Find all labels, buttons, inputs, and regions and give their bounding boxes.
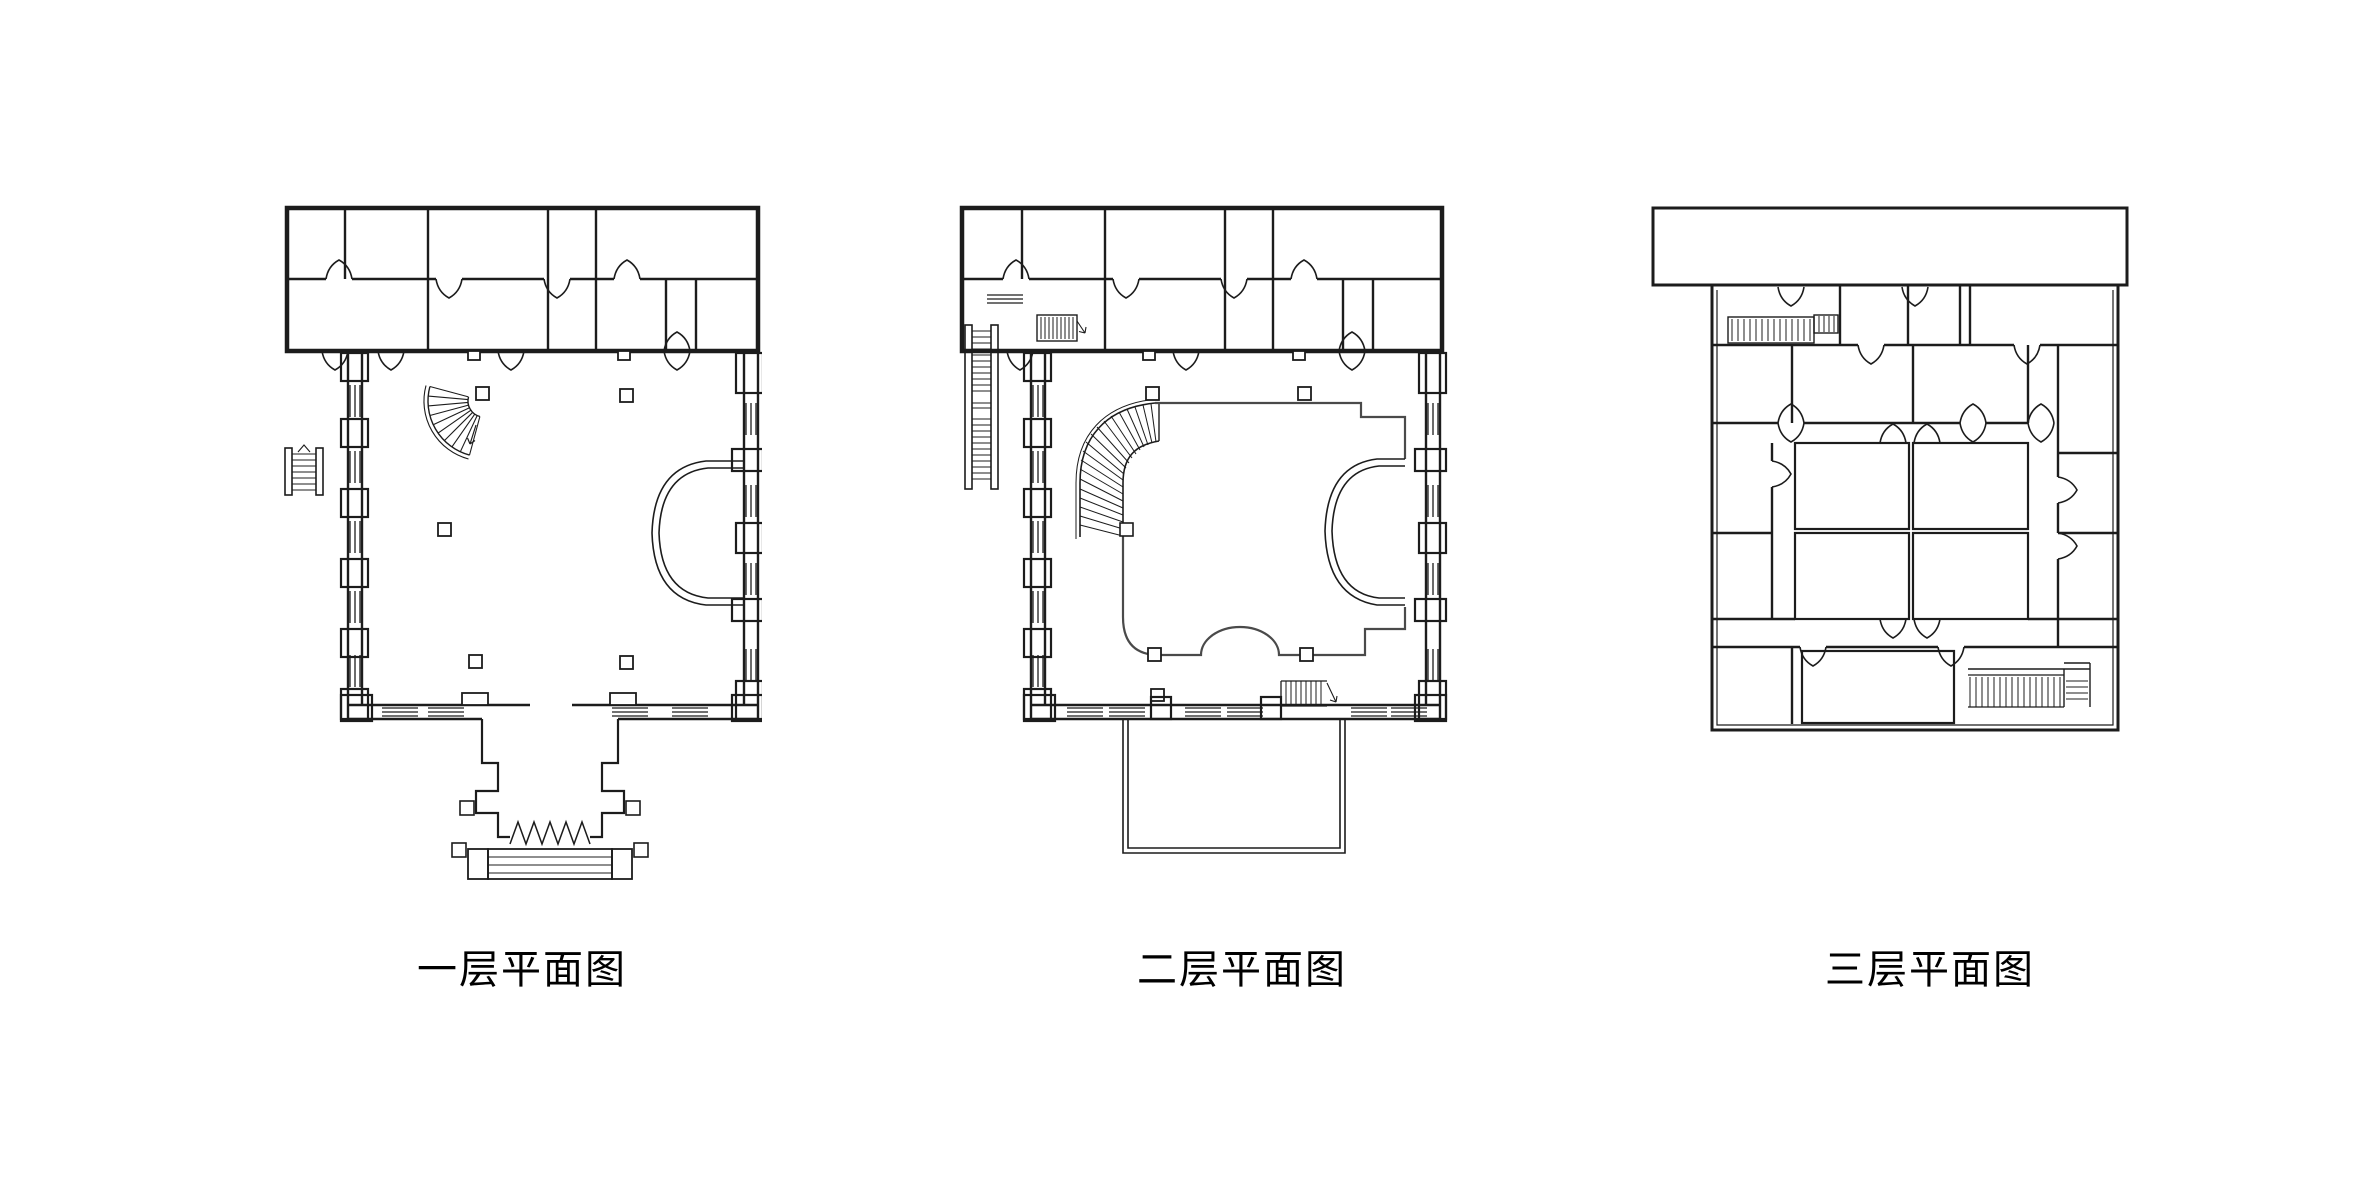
grand-curved-staircase-icon bbox=[1076, 399, 1159, 539]
wall-piers bbox=[341, 353, 762, 721]
floor-plan-2-caption: 二层平面图 bbox=[1002, 938, 1482, 1002]
wing-window-icon bbox=[987, 295, 1023, 303]
column-icons bbox=[1146, 387, 1313, 661]
drawing-sheet: 一层平面图 二层平面图 三层平面图 bbox=[0, 0, 2362, 1181]
exterior-stair-icon bbox=[285, 445, 323, 495]
wall-piers bbox=[1024, 353, 1446, 721]
roof-band bbox=[1653, 208, 2127, 285]
lower-stair-icon bbox=[1968, 663, 2090, 707]
floor-plan-1-drawing bbox=[282, 203, 762, 883]
gallery-balcony-line bbox=[1123, 403, 1405, 655]
entrance-steps-icon bbox=[468, 849, 632, 879]
floor-plan-3-drawing bbox=[1650, 203, 2130, 743]
floor-plan-2-drawing bbox=[955, 203, 1465, 863]
awning-zigzag bbox=[510, 822, 590, 844]
stage-apse bbox=[652, 461, 744, 605]
hall-walls bbox=[1031, 351, 1440, 719]
interior-walls bbox=[1712, 285, 2118, 724]
stage-apse bbox=[1325, 459, 1405, 605]
floor-plan-3-caption: 三层平面图 bbox=[1690, 938, 2170, 1002]
wing-walls bbox=[287, 208, 758, 360]
entrance-portico bbox=[452, 719, 648, 879]
door-swing-icons bbox=[322, 260, 690, 370]
wing-walls bbox=[962, 208, 1442, 360]
fan-staircase-icon bbox=[424, 386, 489, 460]
column-icons bbox=[438, 389, 633, 669]
floor-plan-1-caption: 一层平面图 bbox=[282, 938, 762, 1002]
room-grid bbox=[1795, 443, 2028, 723]
upper-stair-icon bbox=[1728, 315, 1838, 343]
lower-stair-icon bbox=[1281, 681, 1337, 706]
window-icons bbox=[350, 385, 756, 716]
terrace-outline bbox=[1123, 719, 1345, 853]
hall-walls bbox=[348, 351, 758, 719]
small-stair-icon bbox=[1037, 315, 1086, 341]
